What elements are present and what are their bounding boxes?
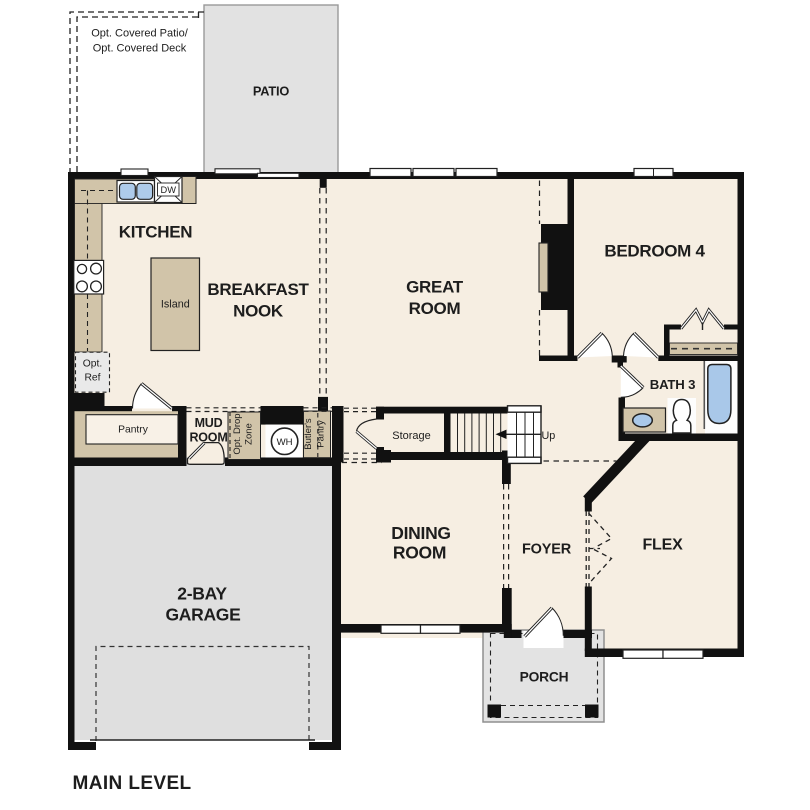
svg-text:Opt. Drop: Opt. Drop (232, 413, 243, 454)
svg-text:2-BAY: 2-BAY (177, 584, 227, 604)
svg-text:ROOM: ROOM (409, 299, 461, 318)
svg-text:FLEX: FLEX (642, 537, 683, 554)
svg-text:Ref: Ref (84, 373, 100, 384)
svg-text:Pantry: Pantry (316, 420, 327, 448)
svg-text:GARAGE: GARAGE (165, 605, 240, 625)
svg-text:Opt. Covered Deck: Opt. Covered Deck (93, 43, 187, 55)
svg-text:ROOM: ROOM (393, 543, 446, 563)
svg-text:BREAKFAST: BREAKFAST (207, 280, 309, 299)
svg-text:BATH 3: BATH 3 (650, 377, 695, 392)
svg-text:PORCH: PORCH (520, 670, 569, 685)
svg-text:MAIN LEVEL: MAIN LEVEL (73, 773, 192, 794)
svg-text:DW: DW (161, 185, 177, 195)
svg-text:PATIO: PATIO (253, 84, 289, 99)
svg-text:Up: Up (542, 430, 556, 442)
svg-text:FOYER: FOYER (522, 542, 572, 558)
svg-text:NOOK: NOOK (233, 302, 284, 321)
svg-text:Opt.: Opt. (83, 359, 102, 370)
svg-text:MUD: MUD (195, 416, 223, 430)
svg-text:GREAT: GREAT (406, 278, 464, 297)
svg-text:Opt. Covered Patio/: Opt. Covered Patio/ (91, 28, 189, 40)
svg-text:BEDROOM 4: BEDROOM 4 (604, 242, 705, 261)
svg-text:Butler's: Butler's (303, 418, 314, 450)
svg-text:DINING: DINING (391, 523, 450, 543)
svg-text:Storage: Storage (392, 430, 431, 442)
svg-text:KITCHEN: KITCHEN (119, 223, 192, 242)
svg-text:Island: Island (161, 299, 190, 311)
svg-text:Pantry: Pantry (118, 425, 149, 436)
svg-text:WH: WH (277, 437, 293, 448)
svg-text:Zone: Zone (244, 423, 255, 445)
